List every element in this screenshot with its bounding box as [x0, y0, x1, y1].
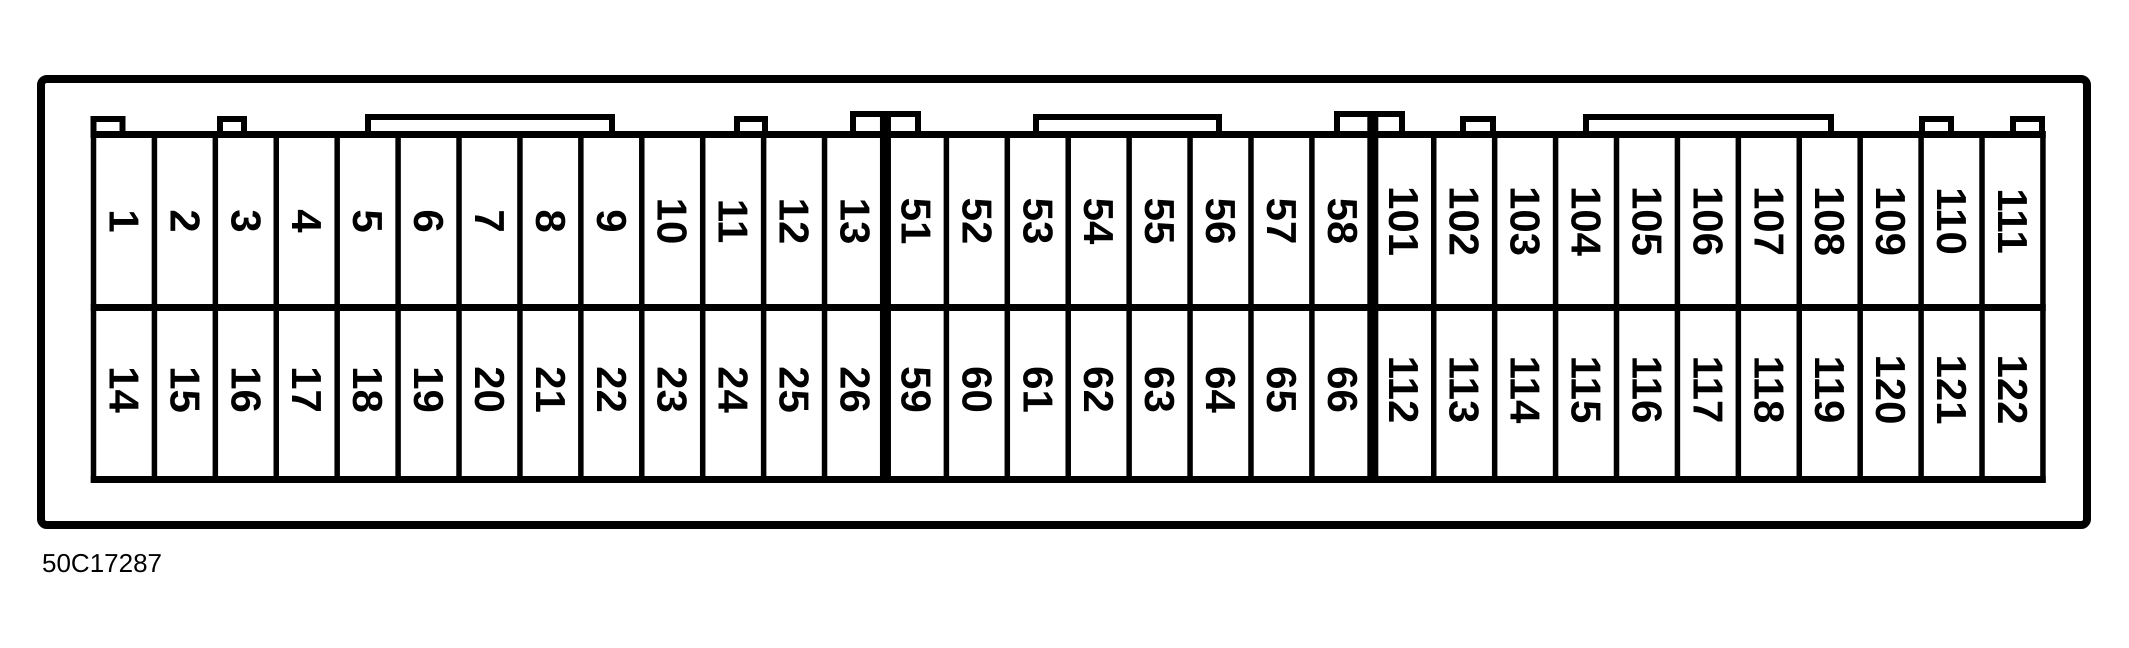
svg-text:58: 58 [1319, 198, 1366, 245]
svg-text:14: 14 [100, 366, 147, 413]
svg-text:120: 120 [1867, 354, 1914, 424]
svg-text:109: 109 [1867, 186, 1914, 256]
svg-text:3: 3 [222, 209, 269, 232]
svg-text:62: 62 [1075, 366, 1122, 413]
svg-text:4: 4 [283, 209, 330, 233]
svg-text:110: 110 [1928, 187, 1975, 255]
svg-text:63: 63 [1136, 366, 1183, 413]
svg-text:21: 21 [527, 366, 574, 413]
svg-text:104: 104 [1563, 186, 1610, 257]
svg-text:116: 116 [1623, 356, 1670, 424]
svg-text:8: 8 [527, 209, 574, 232]
svg-text:50C17287: 50C17287 [42, 548, 162, 578]
svg-text:57: 57 [1258, 198, 1305, 245]
svg-text:114: 114 [1502, 356, 1549, 424]
svg-text:108: 108 [1806, 186, 1853, 256]
svg-text:9: 9 [588, 209, 635, 232]
svg-text:10: 10 [649, 198, 696, 245]
svg-text:66: 66 [1319, 366, 1366, 413]
svg-text:117: 117 [1684, 356, 1731, 424]
svg-text:119: 119 [1806, 356, 1853, 424]
svg-text:64: 64 [1197, 366, 1244, 413]
svg-text:26: 26 [832, 366, 879, 413]
svg-text:59: 59 [892, 366, 939, 413]
svg-text:2: 2 [161, 209, 208, 232]
svg-text:105: 105 [1623, 186, 1670, 256]
svg-text:5: 5 [344, 209, 391, 232]
svg-text:1: 1 [100, 209, 147, 232]
svg-text:115: 115 [1563, 356, 1610, 424]
svg-text:102: 102 [1441, 186, 1488, 256]
svg-text:107: 107 [1745, 186, 1792, 256]
svg-text:101: 101 [1380, 186, 1427, 256]
svg-text:106: 106 [1684, 186, 1731, 256]
svg-text:24: 24 [710, 366, 757, 413]
svg-text:54: 54 [1075, 198, 1122, 245]
svg-text:121: 121 [1928, 354, 1975, 424]
svg-text:6: 6 [405, 209, 452, 232]
svg-text:53: 53 [1014, 198, 1061, 245]
svg-text:60: 60 [953, 366, 1000, 413]
svg-text:12: 12 [771, 198, 818, 245]
svg-text:11: 11 [710, 199, 757, 243]
svg-text:22: 22 [588, 366, 635, 413]
svg-text:23: 23 [649, 366, 696, 413]
svg-text:122: 122 [1989, 354, 2036, 424]
svg-text:118: 118 [1745, 356, 1792, 424]
svg-text:13: 13 [832, 198, 879, 245]
svg-text:55: 55 [1136, 198, 1183, 245]
svg-text:25: 25 [771, 366, 818, 413]
svg-text:103: 103 [1502, 186, 1549, 256]
svg-text:51: 51 [892, 198, 939, 245]
svg-text:112: 112 [1380, 356, 1427, 424]
svg-text:15: 15 [161, 366, 208, 413]
svg-text:111: 111 [1989, 188, 2036, 253]
svg-text:113: 113 [1441, 356, 1488, 424]
svg-text:65: 65 [1258, 366, 1305, 413]
svg-text:61: 61 [1014, 366, 1061, 413]
svg-text:18: 18 [344, 366, 391, 413]
svg-text:52: 52 [953, 198, 1000, 245]
svg-text:56: 56 [1197, 198, 1244, 245]
svg-text:16: 16 [222, 366, 269, 413]
svg-text:19: 19 [405, 366, 452, 413]
svg-text:20: 20 [466, 366, 513, 413]
svg-text:7: 7 [466, 209, 513, 232]
svg-text:17: 17 [283, 366, 330, 413]
